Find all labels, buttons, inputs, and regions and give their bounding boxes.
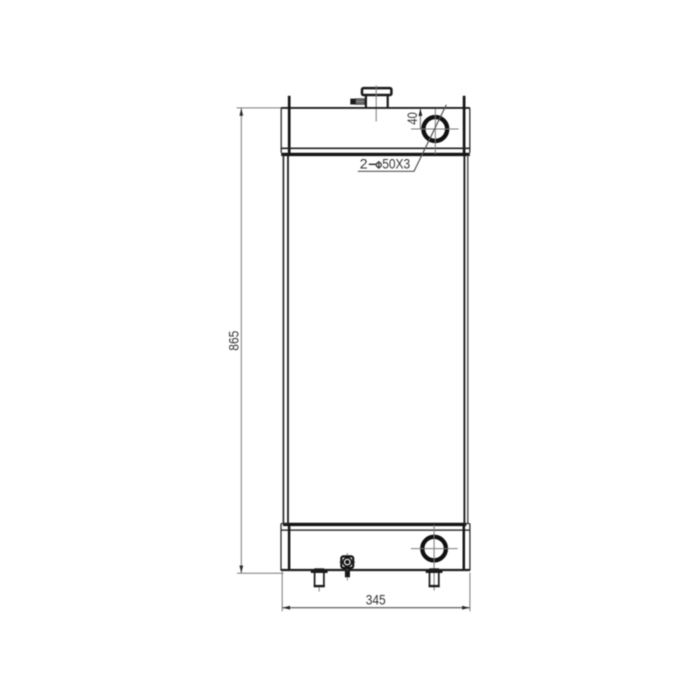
svg-text:345: 345 — [366, 592, 386, 607]
svg-text:50X3: 50X3 — [382, 155, 410, 171]
svg-text:865: 865 — [226, 331, 241, 351]
svg-text:2: 2 — [360, 155, 368, 171]
svg-text:40: 40 — [405, 112, 420, 125]
